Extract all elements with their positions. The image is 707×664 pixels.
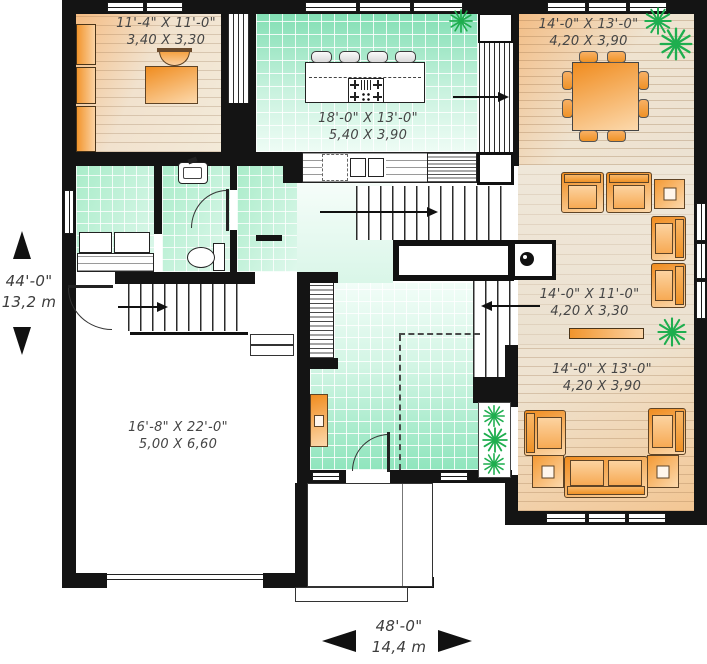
plant-icon — [480, 426, 510, 454]
dryer — [114, 232, 150, 253]
window — [696, 203, 706, 241]
stair-landing — [393, 240, 514, 281]
wall — [230, 166, 237, 190]
stair-arrow-icon — [157, 302, 168, 312]
armchair — [524, 410, 566, 456]
plant-icon — [658, 26, 694, 62]
burner-icon — [373, 80, 382, 89]
sidelight-window — [312, 472, 340, 481]
plant-icon — [448, 8, 474, 34]
burner-icon — [350, 92, 359, 101]
stair-arrow-icon — [498, 92, 509, 102]
window — [64, 190, 74, 234]
wall — [249, 14, 256, 152]
dining-table — [572, 62, 639, 131]
garage-door — [107, 574, 263, 580]
wall — [228, 103, 249, 152]
kitchen-metric: 5,40 X 3,90 — [298, 127, 438, 144]
floor-plan: 11'-4" X 11'-0" 3,40 X 3,30 18'-0" X 13'… — [0, 0, 707, 664]
window — [546, 513, 586, 523]
console-table — [569, 328, 644, 339]
sofa — [564, 456, 648, 498]
kitchen-label: 18'-0" X 13'-0" 5,40 X 3,90 — [298, 110, 438, 144]
window — [696, 281, 706, 319]
dimension-arrow-down-icon — [13, 327, 31, 355]
porch-step — [295, 587, 408, 602]
dishwasher — [322, 154, 348, 181]
wall — [230, 230, 237, 272]
living-metric: 4,20 X 3,30 — [532, 303, 647, 320]
burner-icon — [373, 92, 382, 101]
dimension-arrow-left-icon — [322, 630, 356, 652]
window — [107, 2, 144, 12]
front-door — [387, 432, 390, 472]
fireplace-stove-icon — [520, 252, 534, 266]
stair-rail — [130, 332, 248, 335]
wall — [154, 166, 162, 234]
dining-chair — [607, 130, 626, 142]
bar-stool — [311, 51, 332, 63]
kitchen-imperial: 18'-0" X 13'-0" — [298, 110, 438, 127]
office-label: 11'-4" X 11'-0" 3,40 X 3,30 — [96, 15, 236, 49]
living-imperial: 14'-0" X 11'-0" — [532, 286, 647, 303]
stair-arrow-icon — [427, 207, 438, 217]
towel-bar — [256, 235, 282, 241]
wall — [297, 272, 310, 483]
stair-arrow-line — [320, 211, 432, 213]
lamp-icon — [663, 188, 676, 201]
garage-door-opening — [76, 272, 115, 284]
dining-chair — [638, 99, 649, 118]
console-table — [310, 394, 328, 447]
stair-arrow-line — [118, 306, 162, 308]
dining-chair — [607, 51, 626, 63]
front-door-opening — [346, 470, 390, 483]
window — [588, 513, 626, 523]
side-table — [654, 179, 685, 209]
window — [547, 2, 586, 12]
plant-icon — [480, 452, 508, 476]
stair-arrow-line — [453, 96, 503, 98]
wall — [263, 573, 305, 588]
window — [146, 2, 183, 12]
armchair — [561, 172, 604, 213]
stair-step — [250, 345, 294, 356]
sink — [348, 156, 386, 180]
window — [359, 2, 411, 12]
toilet-bowl — [187, 247, 215, 268]
dining-chair — [579, 130, 598, 142]
family-imperial: 14'-0" X 13'-0" — [542, 361, 662, 378]
stair-arrow-icon — [481, 301, 492, 311]
armchair — [651, 216, 686, 261]
family-metric: 4,20 X 3,90 — [542, 378, 662, 395]
refrigerator — [427, 152, 477, 183]
porch-edge — [402, 484, 403, 586]
armchair — [606, 172, 652, 213]
end-table — [532, 455, 564, 488]
sidelight-window — [440, 472, 468, 481]
laundry-counter — [77, 253, 154, 272]
lamp-icon — [657, 465, 670, 478]
office-metric: 3,40 X 3,30 — [96, 32, 236, 49]
dining-chair — [562, 99, 573, 118]
dining-chair — [562, 71, 573, 90]
width-imperial: 48'-0" — [358, 616, 440, 637]
stairs-upper-landing — [478, 13, 513, 43]
wall — [62, 573, 107, 588]
depth-metric: 13,2 m — [0, 292, 58, 313]
window — [696, 243, 706, 279]
dining-label: 14'-0" X 13'-0" 4,20 X 3,90 — [516, 16, 661, 50]
window — [628, 513, 666, 523]
wall — [297, 358, 338, 369]
armchair — [648, 408, 686, 455]
dining-chair — [579, 51, 598, 63]
foyer-floor — [310, 283, 478, 470]
lamp-icon — [542, 465, 555, 478]
garage-label: 16'-8" X 22'-0" 5,00 X 6,60 — [118, 419, 238, 453]
sink-basin — [368, 158, 384, 177]
grill-dots-icon — [361, 92, 371, 101]
laundry-sink — [178, 162, 208, 184]
ceiling-break-line — [399, 333, 480, 335]
sink-basin — [350, 158, 366, 177]
end-table — [647, 455, 679, 488]
washer — [79, 232, 112, 253]
armchair — [651, 263, 686, 308]
ceiling-break-line — [399, 335, 401, 470]
garage-entry-door — [68, 285, 113, 288]
window — [588, 2, 627, 12]
stair-step — [250, 334, 294, 345]
dining-metric: 4,20 X 3,90 — [516, 33, 661, 50]
wall — [115, 272, 255, 284]
bookshelf — [76, 24, 96, 65]
bookshelf — [76, 67, 96, 104]
dimension-arrow-right-icon — [438, 630, 472, 652]
bookshelf — [76, 106, 96, 152]
depth-imperial: 44'-0" — [0, 271, 58, 292]
bar-stool — [339, 51, 360, 63]
plant-icon — [656, 316, 688, 348]
porch — [307, 483, 433, 587]
desk — [145, 66, 198, 104]
plant-icon — [480, 404, 508, 428]
wall — [505, 345, 518, 407]
powder-door — [226, 189, 229, 231]
dining-chair — [638, 71, 649, 90]
width-dimension: 48'-0" 14,4 m — [358, 616, 440, 658]
dimension-arrow-up-icon — [13, 231, 31, 259]
garage-imperial: 16'-8" X 22'-0" — [118, 419, 238, 436]
fireplace — [511, 240, 556, 280]
garage-metric: 5,00 X 6,60 — [118, 436, 238, 453]
window — [305, 2, 357, 12]
bar-stool — [367, 51, 388, 63]
family-label: 14'-0" X 13'-0" 4,20 X 3,90 — [542, 361, 662, 395]
burner-icon — [350, 80, 359, 89]
dining-imperial: 14'-0" X 13'-0" — [516, 16, 661, 33]
depth-dimension: 44'-0" 13,2 m — [0, 271, 58, 313]
grill-icon — [361, 80, 371, 90]
office-imperial: 11'-4" X 11'-0" — [96, 15, 236, 32]
wall — [505, 475, 518, 525]
wall — [305, 272, 338, 283]
living-label: 14'-0" X 11'-0" 4,20 X 3,30 — [532, 286, 647, 320]
width-metric: 14,4 m — [358, 637, 440, 658]
pantry-box — [477, 152, 514, 185]
bar-stool — [395, 51, 416, 63]
